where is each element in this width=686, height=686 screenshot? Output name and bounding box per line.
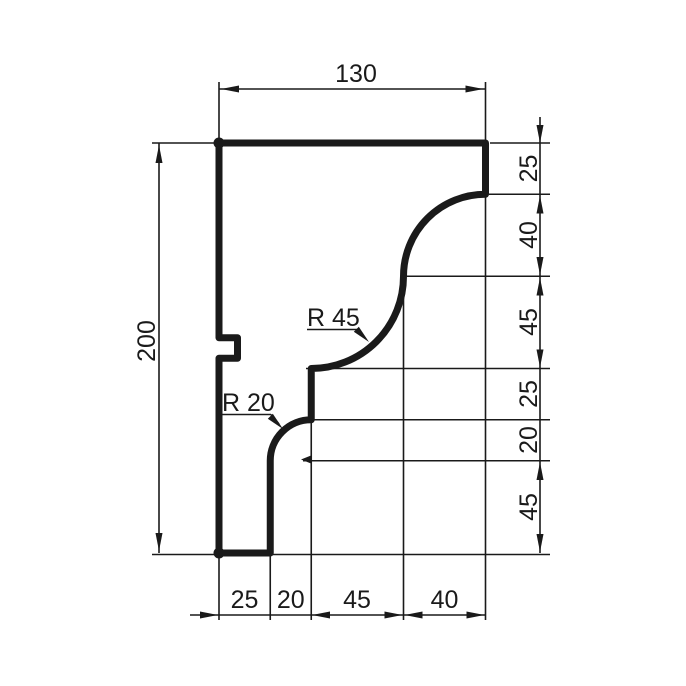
- dim-right-value-2: 40: [515, 221, 543, 249]
- arrowhead-down-icon: [537, 125, 544, 143]
- arrowhead-up-icon: [537, 196, 544, 214]
- corner-dot-bottom-left: [214, 548, 225, 559]
- technical-drawing: 130 200 25 40 45 25 20 45: [0, 0, 686, 686]
- dim-right-value-4: 25: [515, 380, 543, 408]
- arrowhead-down-icon: [537, 257, 544, 275]
- dim-bottom-value-2: 20: [277, 586, 305, 614]
- arrowhead-down-icon: [156, 533, 163, 551]
- dim-right-value-3: 45: [515, 308, 543, 336]
- arrowhead-left-icon: [221, 86, 239, 93]
- arrowhead-up-icon: [156, 145, 163, 163]
- arrowhead-left-icon: [312, 612, 330, 619]
- drawing-canvas: 130 200 25 40 45 25 20 45: [0, 0, 686, 686]
- dim-right-value-5: 20: [515, 426, 543, 454]
- arrowhead-up-icon: [537, 278, 544, 296]
- radius-label-r20: R 20: [222, 389, 283, 429]
- dim-bottom-value-1: 25: [231, 586, 259, 614]
- arrowhead-right-icon: [467, 612, 485, 619]
- arrowhead-up-icon: [537, 462, 544, 480]
- dim-left-value: 200: [133, 320, 161, 362]
- r20-label: R 20: [222, 389, 275, 417]
- arrowhead-right-icon: [200, 612, 218, 619]
- dim-top: 130: [219, 60, 486, 140]
- dim-right-value-6: 45: [515, 493, 543, 521]
- arrowhead-down-icon: [537, 350, 544, 368]
- radius-label-r45: R 45: [307, 304, 369, 342]
- profile-path: [219, 143, 486, 553]
- arrowhead-right-icon: [385, 612, 403, 619]
- dim-top-value: 130: [335, 60, 377, 88]
- dim-right-value-1: 25: [515, 155, 543, 183]
- r20-center-marker-icon: [301, 456, 311, 464]
- arrowhead-right-icon: [466, 86, 484, 93]
- dim-bottom-value-4: 40: [431, 586, 459, 614]
- corner-dot-top-left: [214, 138, 225, 149]
- profile-outline: [214, 138, 486, 559]
- dim-right-chain: 25 40 45 25 20 45: [301, 117, 550, 553]
- arrowhead-left-icon: [405, 612, 423, 619]
- arrowhead-down-icon: [537, 534, 544, 552]
- dim-left: 200: [133, 143, 214, 553]
- dim-bottom-value-3: 45: [343, 586, 371, 614]
- r45-label: R 45: [307, 304, 360, 332]
- dim-bottom-chain: 25 20 45 40: [152, 82, 550, 620]
